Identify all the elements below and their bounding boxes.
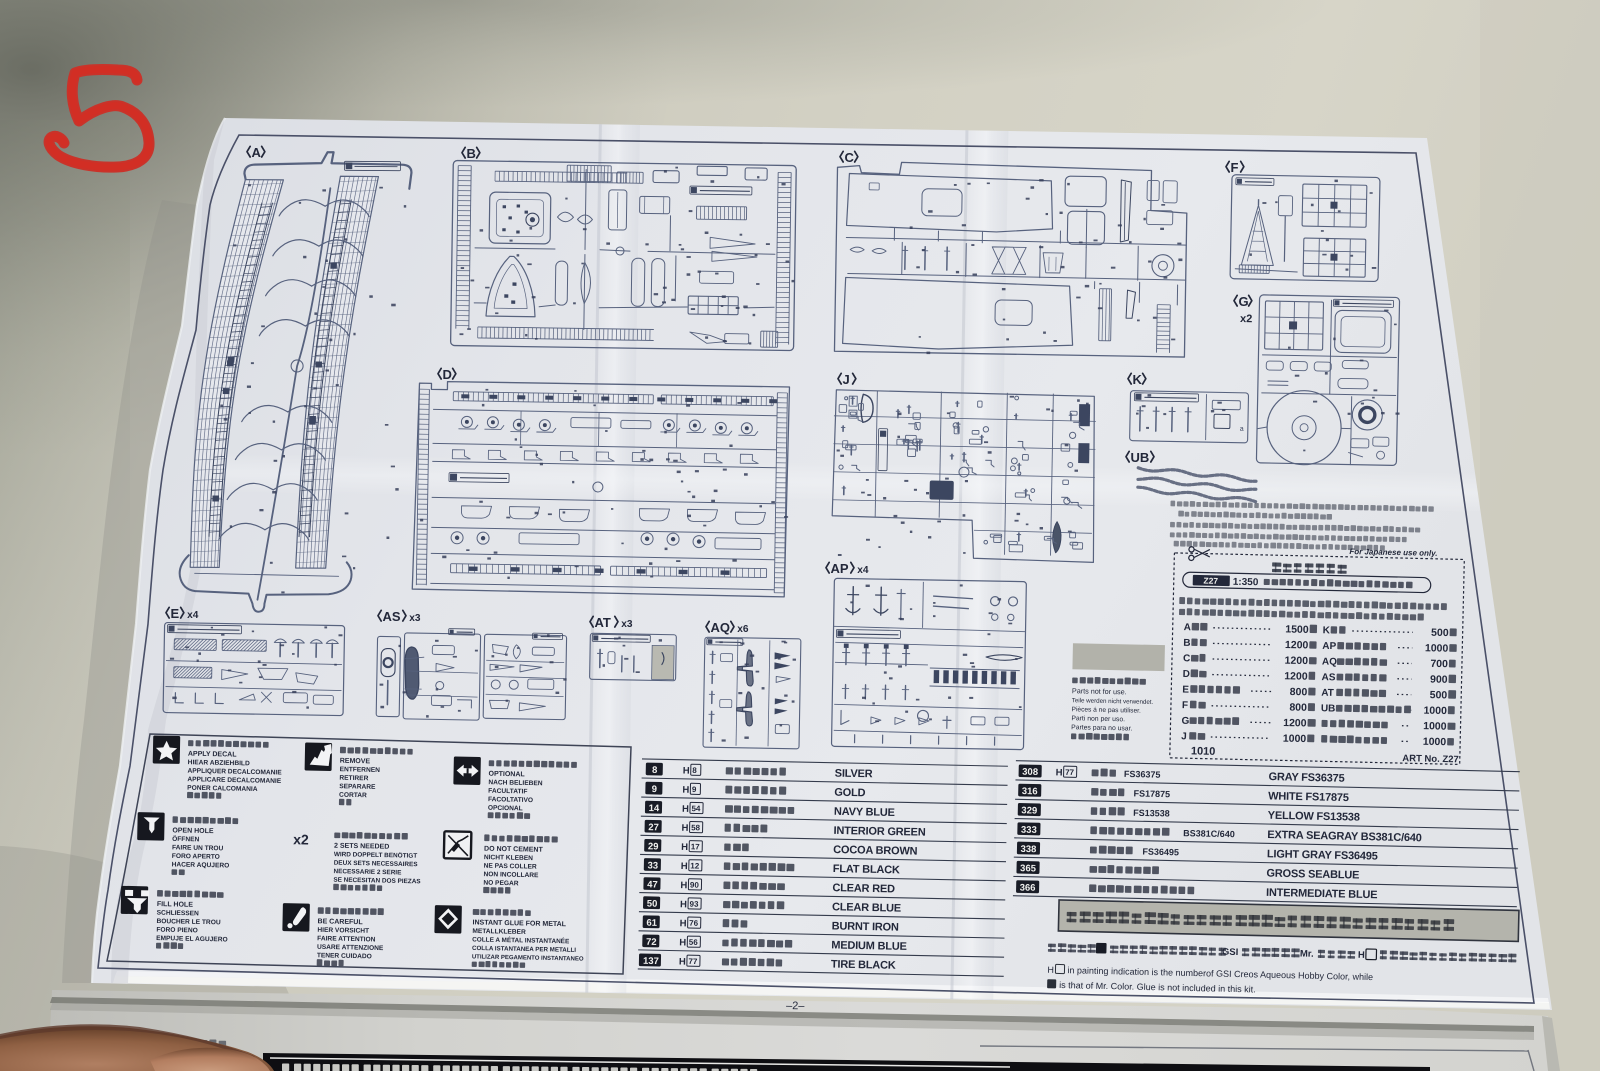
svg-text:1010: 1010: [1191, 745, 1216, 758]
svg-text:E: E: [171, 606, 180, 621]
svg-text:x3: x3: [409, 613, 421, 624]
svg-text:TIRE BLACK: TIRE BLACK: [831, 959, 896, 972]
svg-text:333: 333: [1021, 825, 1037, 836]
svg-text:58: 58: [691, 823, 701, 832]
svg-text:E: E: [1182, 685, 1189, 696]
svg-text:61: 61: [646, 918, 658, 929]
svg-text:500: 500: [1430, 689, 1448, 701]
svg-text:GRAY FS36375: GRAY FS36375: [1268, 771, 1344, 785]
svg-text:A: A: [252, 145, 262, 160]
svg-text:33: 33: [647, 860, 658, 871]
svg-text:800: 800: [1289, 702, 1307, 714]
svg-text:x4: x4: [857, 565, 869, 576]
svg-text:GOLD: GOLD: [834, 787, 865, 800]
svg-text:1000: 1000: [1423, 720, 1447, 733]
svg-text:H: H: [680, 880, 687, 891]
svg-text:For Japanese use only.: For Japanese use only.: [1349, 547, 1437, 558]
svg-text:1000: 1000: [1283, 733, 1307, 746]
svg-text:FLAT BLACK: FLAT BLACK: [833, 863, 900, 876]
svg-text:EMPUJE EL AGUJERO: EMPUJE EL AGUJERO: [156, 935, 228, 943]
svg-text:AS: AS: [383, 609, 401, 624]
svg-text:AT: AT: [1321, 688, 1334, 699]
svg-text:900: 900: [1430, 674, 1448, 686]
svg-text:SEPARARE: SEPARARE: [339, 783, 376, 791]
svg-text:FORO APERTO: FORO APERTO: [172, 853, 220, 861]
svg-text:F: F: [1182, 700, 1188, 711]
svg-text:29: 29: [648, 841, 659, 852]
svg-text:UB: UB: [1131, 450, 1150, 465]
svg-text:INTERMEDIATE BLUE: INTERMEDIATE BLUE: [1266, 887, 1378, 901]
svg-text:77: 77: [1065, 768, 1075, 777]
svg-text:UB: UB: [1321, 703, 1336, 714]
svg-text:1200: 1200: [1284, 655, 1308, 668]
svg-text:HIEAR ABZIEHBILD: HIEAR ABZIEHBILD: [188, 759, 250, 767]
svg-text:72: 72: [646, 937, 657, 948]
svg-text:H: H: [680, 899, 687, 910]
svg-text:GSI: GSI: [1222, 947, 1239, 958]
svg-text:a: a: [1240, 426, 1244, 433]
svg-text:329: 329: [1021, 805, 1037, 816]
svg-text:FS17875: FS17875: [1133, 788, 1170, 799]
svg-text:BOUCHER LE TROU: BOUCHER LE TROU: [156, 918, 220, 926]
svg-text:308: 308: [1022, 767, 1038, 778]
svg-text:G: G: [1239, 294, 1249, 309]
svg-text:H: H: [683, 766, 690, 777]
svg-text:FACULTATIF: FACULTATIF: [488, 788, 527, 796]
svg-text:Partes para no usar.: Partes para no usar.: [1071, 724, 1132, 732]
svg-text:D: D: [443, 367, 452, 382]
svg-text:LIGHT GRAY FS36495: LIGHT GRAY FS36495: [1267, 848, 1378, 862]
svg-text:AQ: AQ: [1322, 656, 1337, 667]
svg-text:x2: x2: [1240, 313, 1252, 325]
svg-text:J: J: [1181, 731, 1187, 742]
svg-text:AP: AP: [1322, 641, 1336, 652]
svg-text:93: 93: [689, 900, 699, 909]
svg-text:G: G: [1181, 716, 1189, 727]
svg-text:FS13538: FS13538: [1133, 808, 1170, 819]
svg-text:1200: 1200: [1284, 670, 1308, 683]
svg-text:NAVY BLUE: NAVY BLUE: [834, 806, 895, 819]
svg-text:H: H: [681, 823, 688, 834]
svg-text:CLEAR BLUE: CLEAR BLUE: [832, 901, 901, 914]
svg-text:H: H: [680, 918, 687, 929]
svg-text:FS36495: FS36495: [1142, 847, 1179, 858]
svg-text:Parti non per uso.: Parti non per uso.: [1071, 715, 1125, 723]
svg-text:INTERIOR GREEN: INTERIOR GREEN: [833, 825, 925, 839]
svg-text:K: K: [1133, 372, 1143, 387]
svg-text:Parts not for use.: Parts not for use.: [1072, 686, 1127, 696]
svg-text:NACH BELIEBEN: NACH BELIEBEN: [488, 779, 543, 787]
svg-text:COCOA BROWN: COCOA BROWN: [833, 844, 918, 858]
svg-text:50: 50: [647, 899, 658, 910]
svg-text:1500: 1500: [1285, 623, 1309, 636]
svg-text:500: 500: [1431, 627, 1449, 639]
svg-text:B: B: [467, 146, 476, 161]
svg-text:9: 9: [692, 785, 697, 794]
svg-text:338: 338: [1020, 844, 1036, 855]
svg-text:APPLY DECAL: APPLY DECAL: [188, 751, 237, 759]
svg-text:CORTAR: CORTAR: [339, 792, 367, 800]
svg-text:OPCIONAL: OPCIONAL: [488, 805, 523, 813]
svg-text:366: 366: [1020, 882, 1036, 893]
svg-text:RETIRER: RETIRER: [339, 775, 368, 783]
svg-text:x6: x6: [737, 624, 749, 635]
svg-text:WHITE FS17875: WHITE FS17875: [1268, 790, 1349, 804]
svg-text:76: 76: [689, 919, 699, 928]
svg-text:365: 365: [1020, 863, 1037, 874]
svg-text:FAIRE UN TROU: FAIRE UN TROU: [172, 844, 224, 852]
svg-text:17: 17: [691, 842, 701, 851]
svg-text:SILVER: SILVER: [835, 768, 873, 781]
svg-text:ART No. Z27: ART No. Z27: [1402, 753, 1459, 765]
svg-text:1000: 1000: [1423, 705, 1447, 718]
svg-text:AT: AT: [595, 615, 611, 630]
svg-text:8: 8: [652, 765, 658, 776]
svg-text:1000: 1000: [1425, 642, 1449, 655]
svg-text:METALLKLEBER: METALLKLEBER: [472, 928, 526, 936]
svg-text:27: 27: [648, 822, 659, 833]
svg-text:USARE ATTENZIONE: USARE ATTENZIONE: [317, 944, 384, 952]
svg-text:HIER VORSICHT: HIER VORSICHT: [317, 927, 369, 935]
svg-text:47: 47: [647, 879, 658, 890]
svg-text:K: K: [1323, 625, 1331, 636]
svg-text:HACER AQUJERO: HACER AQUJERO: [172, 861, 230, 869]
svg-text:90: 90: [690, 880, 700, 889]
svg-text:F: F: [1231, 160, 1239, 175]
svg-text:FORO PIENO: FORO PIENO: [156, 927, 198, 935]
svg-text:137: 137: [643, 956, 659, 967]
svg-text:YELLOW FS13538: YELLOW FS13538: [1268, 810, 1360, 824]
svg-text:FS36375: FS36375: [1124, 769, 1161, 780]
svg-text:OPEN HOLE: OPEN HOLE: [172, 827, 214, 835]
svg-text:ENTFERNEN: ENTFERNEN: [340, 766, 381, 774]
svg-text:AS: AS: [1321, 672, 1335, 683]
svg-text:NO PEGAR: NO PEGAR: [483, 880, 519, 888]
svg-text:FILL HOLE: FILL HOLE: [157, 901, 193, 909]
svg-text:700: 700: [1430, 658, 1448, 670]
svg-text:Mr.: Mr.: [1300, 948, 1314, 959]
svg-text:SCHLIESSEN: SCHLIESSEN: [157, 910, 200, 918]
svg-text:H: H: [679, 937, 686, 948]
svg-text:D: D: [1183, 669, 1190, 680]
svg-text:BS381C/640: BS381C/640: [1183, 828, 1235, 839]
svg-text:Z27: Z27: [1203, 576, 1218, 586]
svg-text:H: H: [679, 956, 686, 967]
svg-text:PONER CALCOMANIA: PONER CALCOMANIA: [187, 785, 258, 793]
svg-text:BE CAREFUL: BE CAREFUL: [317, 918, 363, 926]
svg-text:2 SETS NEEDED: 2 SETS NEEDED: [334, 843, 389, 851]
svg-text:H: H: [682, 785, 689, 796]
svg-text:1:350: 1:350: [1233, 577, 1259, 589]
svg-text:14: 14: [649, 803, 661, 814]
svg-text:TENER CUIDADO: TENER CUIDADO: [317, 952, 372, 960]
svg-text:H: H: [681, 861, 688, 872]
svg-text:REMOVE: REMOVE: [340, 758, 371, 766]
svg-text:MEDIUM BLUE: MEDIUM BLUE: [831, 939, 907, 953]
svg-text:BURNT IRON: BURNT IRON: [832, 920, 900, 933]
svg-text:x2: x2: [293, 831, 309, 847]
svg-text:H: H: [1047, 965, 1054, 975]
svg-text:x4: x4: [187, 610, 199, 621]
svg-text:GROSS SEABLUE: GROSS SEABLUE: [1266, 868, 1359, 882]
svg-text:1200: 1200: [1285, 639, 1309, 652]
svg-text:H: H: [1056, 767, 1063, 778]
svg-text:1000: 1000: [1423, 736, 1447, 749]
svg-text:–2–: –2–: [786, 1000, 805, 1012]
svg-text:8: 8: [692, 766, 697, 775]
svg-text:316: 316: [1022, 786, 1038, 797]
svg-text:FAIRE ATTENTION: FAIRE ATTENTION: [317, 935, 376, 943]
svg-text:H: H: [682, 804, 689, 815]
svg-text:AQ: AQ: [711, 620, 731, 635]
svg-text:AP: AP: [831, 561, 849, 576]
svg-text:C: C: [1183, 653, 1190, 664]
svg-text:NON INCOLLARE: NON INCOLLARE: [483, 871, 539, 879]
svg-text:800: 800: [1290, 686, 1308, 698]
svg-text:1200: 1200: [1283, 717, 1307, 730]
svg-text:x3: x3: [621, 619, 633, 630]
svg-text:Pièces á ne pas utiliser.: Pièces á ne pas utiliser.: [1072, 706, 1142, 714]
svg-text:NECESSARIE 2 SERIE: NECESSARIE 2 SERIE: [333, 868, 402, 876]
svg-text:NICHT KLEBEN: NICHT KLEBEN: [484, 854, 533, 862]
svg-text:77: 77: [688, 957, 698, 966]
svg-text:J: J: [843, 372, 850, 387]
svg-text:H: H: [1358, 950, 1365, 961]
svg-text:C: C: [845, 150, 855, 165]
svg-text:OPTIONAL: OPTIONAL: [488, 771, 525, 779]
svg-text:NE PAS COLLER: NE PAS COLLER: [484, 863, 537, 871]
svg-text:FACOLTATIVO: FACOLTATIVO: [488, 796, 533, 804]
svg-text:9: 9: [652, 784, 658, 795]
svg-text:H: H: [681, 842, 688, 853]
svg-text:B: B: [1183, 638, 1190, 649]
svg-text:12: 12: [690, 861, 700, 870]
svg-text:CLEAR RED: CLEAR RED: [832, 882, 895, 895]
svg-text:DO NOT CEMENT: DO NOT CEMENT: [484, 846, 544, 854]
svg-text:56: 56: [689, 938, 699, 947]
svg-text:A: A: [1184, 622, 1191, 633]
svg-text:54: 54: [691, 804, 701, 813]
